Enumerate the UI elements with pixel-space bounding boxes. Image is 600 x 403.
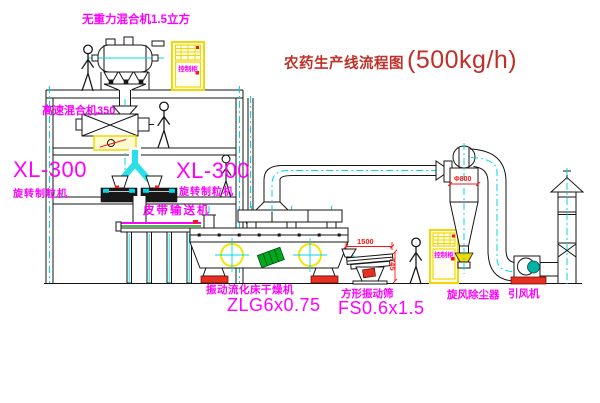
belt-conveyor (116, 220, 201, 283)
dimension-cyclone-diameter: Φ800 (454, 176, 471, 183)
title-text: 农药生产线流程图 (284, 52, 404, 73)
label-high-speed-mixer: 高速混合机350 (42, 106, 115, 117)
person-roof (82, 45, 94, 91)
label-dryer-name: 振动流化床干燥机 (206, 285, 294, 296)
fluid-bed-dryer (190, 206, 357, 283)
dimension-sieve-length: 1500 (357, 238, 374, 246)
label-cyclone-name: 旋风除尘器 (447, 290, 500, 301)
label-belt-conveyor: 皮带输送机 (143, 206, 211, 218)
granulator-left (101, 176, 137, 202)
label-granulator-left-model: XL-300 (13, 159, 87, 181)
exhaust-duct (256, 161, 450, 212)
person-ground (410, 238, 422, 284)
person-second-floor (158, 102, 170, 148)
label-granulator-right-model: XL-300 (176, 160, 250, 182)
label-cabinet-top: 控制柜 (176, 67, 200, 74)
label-granulator-left-name: 旋转制粒机 (13, 190, 68, 200)
gravity-free-mixer (88, 37, 164, 90)
label-fan-name: 引风机 (508, 289, 540, 300)
label-gravity-mixer: 无重力混合机1.5立方 (82, 15, 190, 27)
exhaust-stack (551, 168, 583, 284)
dimension-sieve-height: 745 (389, 258, 397, 271)
label-cabinet-right: 控制柜 (433, 253, 455, 260)
process-flow-diagram: 农药生产线流程图 (500kg/h) 无重力混合机1.5立方 高速混合机350 … (0, 0, 600, 403)
induced-draft-fan (511, 256, 558, 284)
label-dryer-model: ZLG6x0.75 (227, 296, 321, 314)
label-sieve-model: FS0.6x1.5 (338, 299, 425, 317)
label-granulator-right-name: 旋转制粒机 (179, 188, 234, 198)
title-capacity: (500kg/h) (407, 46, 517, 75)
high-speed-mixer (76, 114, 154, 150)
diagram-title: 农药生产线流程图 (500kg/h) (284, 46, 517, 75)
